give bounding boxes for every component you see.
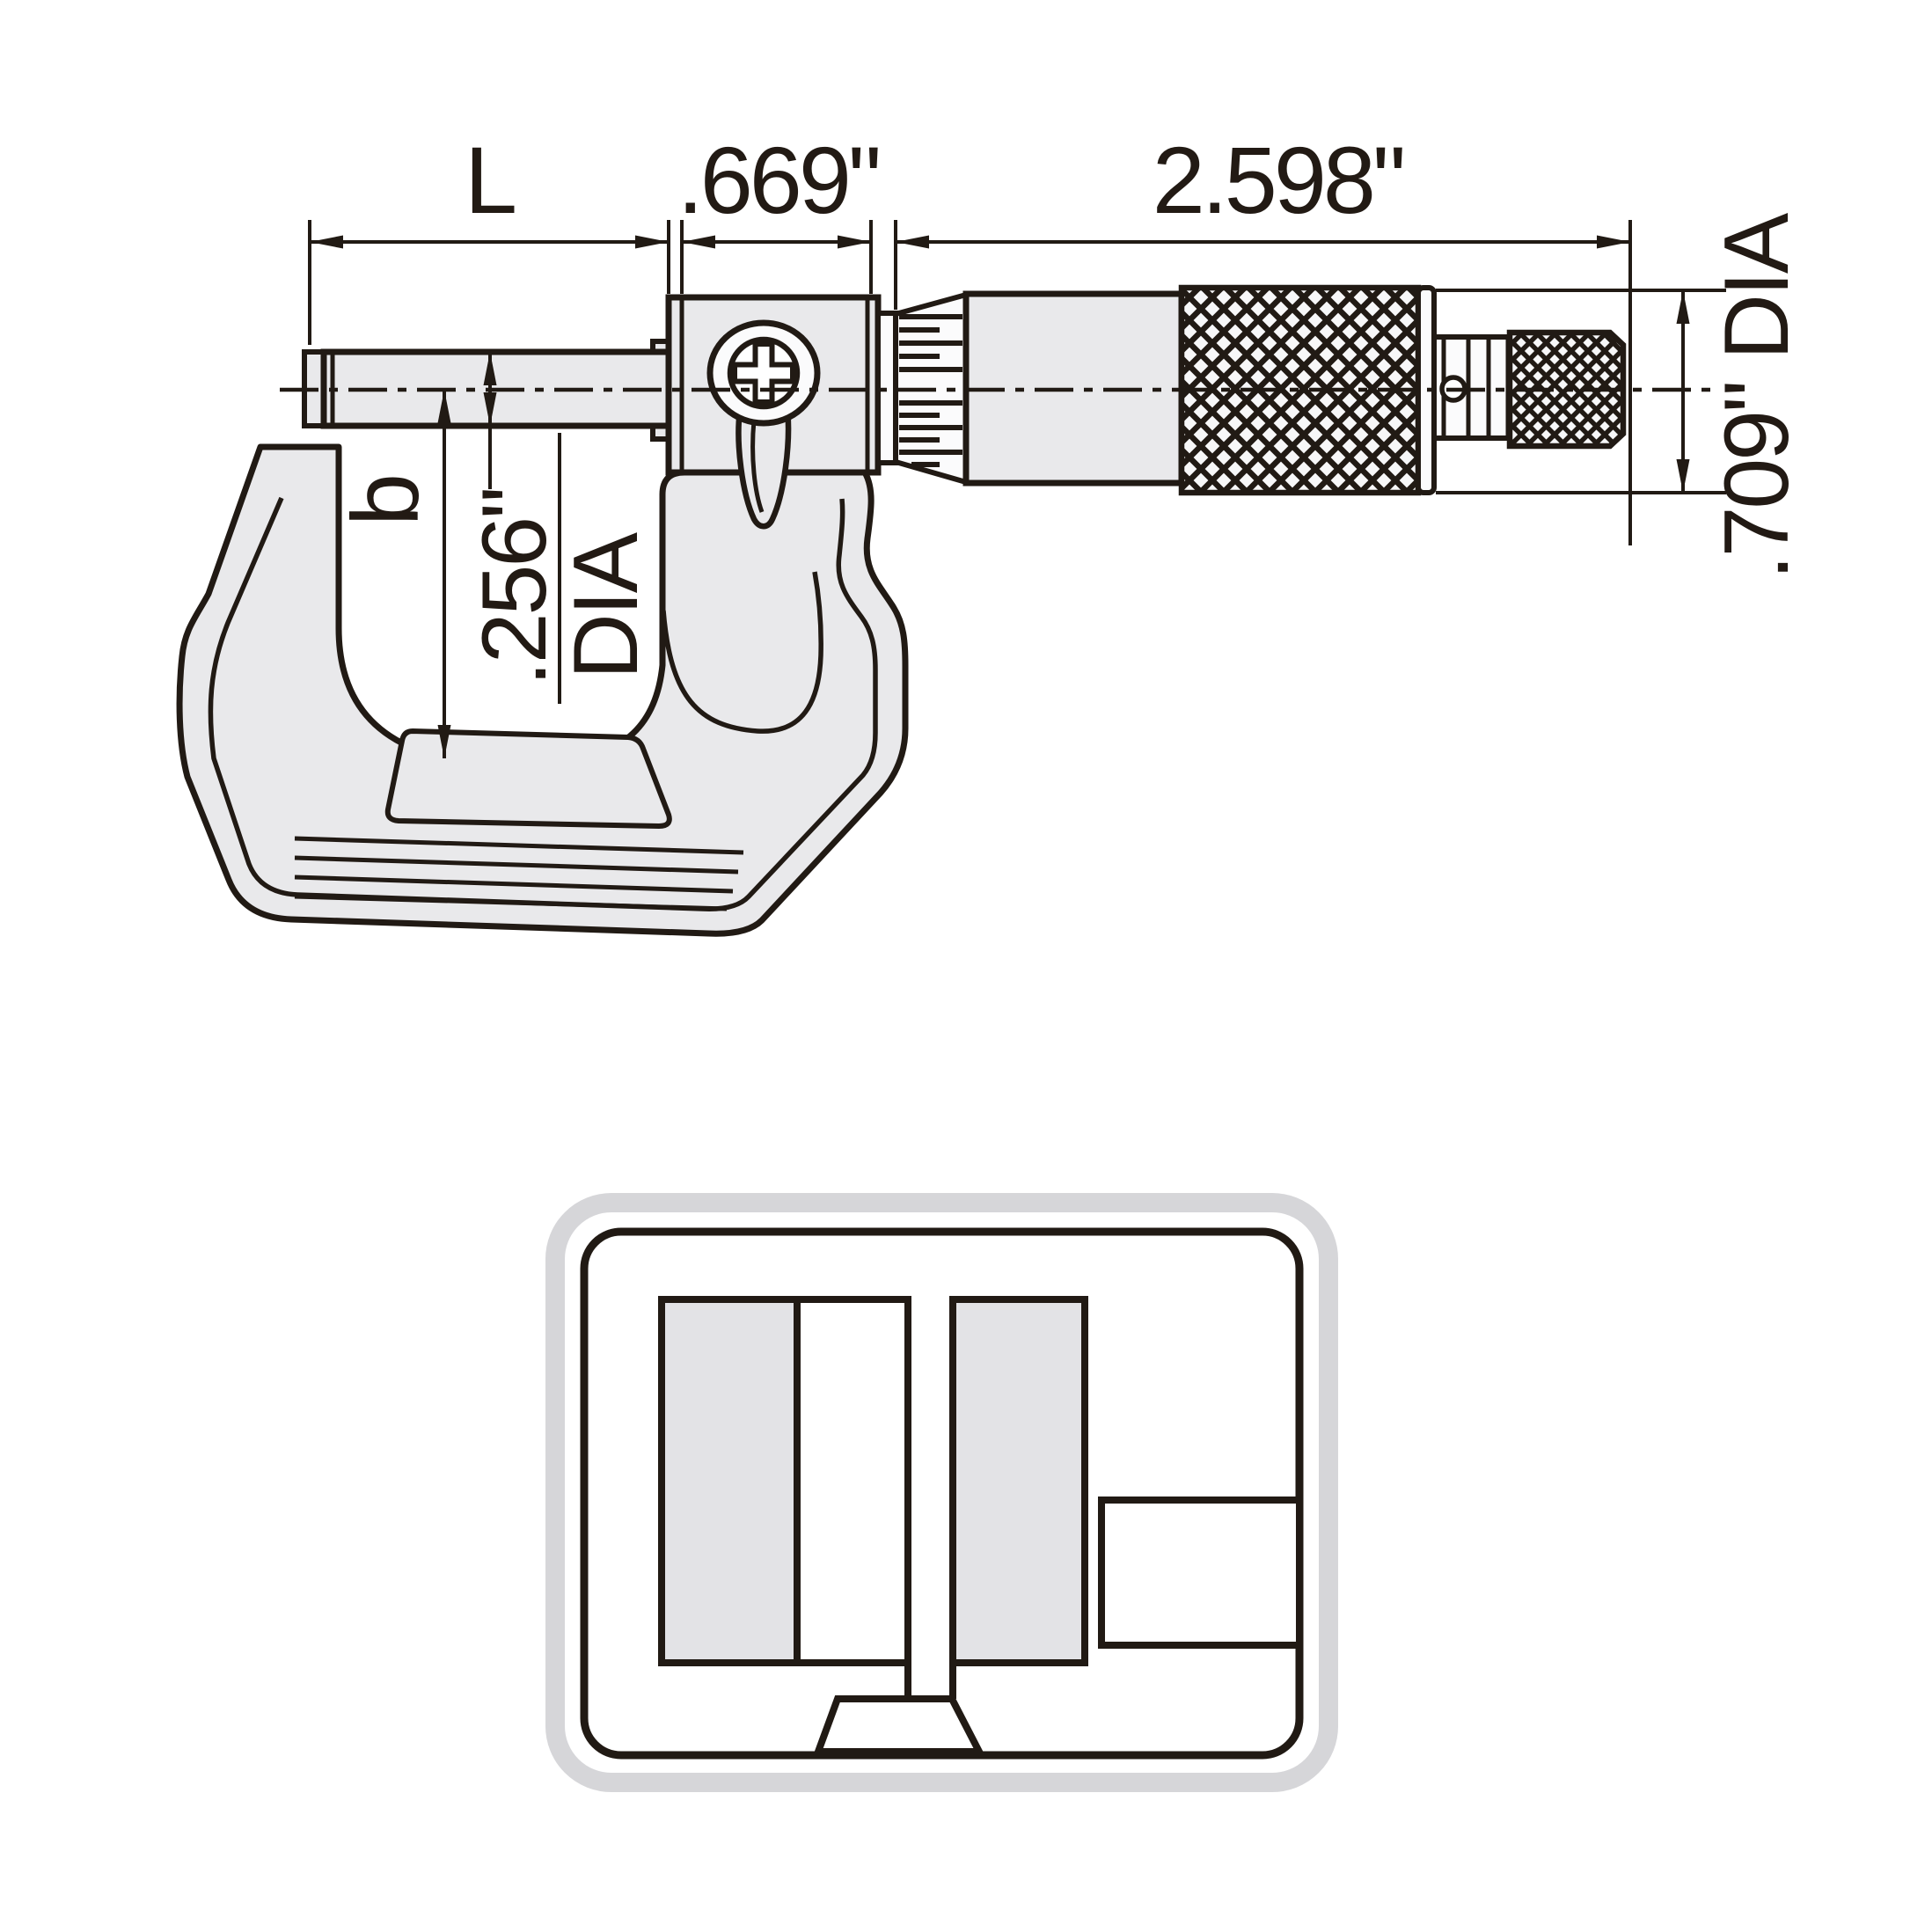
technical-drawing-page: L .669" 2.598" .709" DIA b .256" DIA (0, 0, 1932, 1932)
workpiece-block-left (662, 1299, 797, 1663)
frame-recessed-panel (388, 731, 670, 826)
workpiece-slot (797, 1299, 908, 1663)
anvil-foot (818, 1699, 979, 1752)
workpiece-block-right (953, 1299, 1085, 1663)
label-b: b (332, 477, 438, 526)
label-head-length: .669" (677, 127, 879, 233)
label-L: L (465, 127, 515, 233)
micrometer-technical-drawing: L .669" 2.598" .709" DIA b .256" DIA (0, 0, 1932, 1932)
label-spindle-diameter: .256" (464, 489, 566, 686)
application-inset (555, 1203, 1328, 1782)
label-spindle-diameter-suffix: DIA (555, 531, 657, 679)
label-thimble-diameter: .709" DIA (1706, 212, 1808, 580)
spindle-tip (1101, 1500, 1299, 1645)
label-sleeve-length: 2.598" (1153, 127, 1403, 233)
